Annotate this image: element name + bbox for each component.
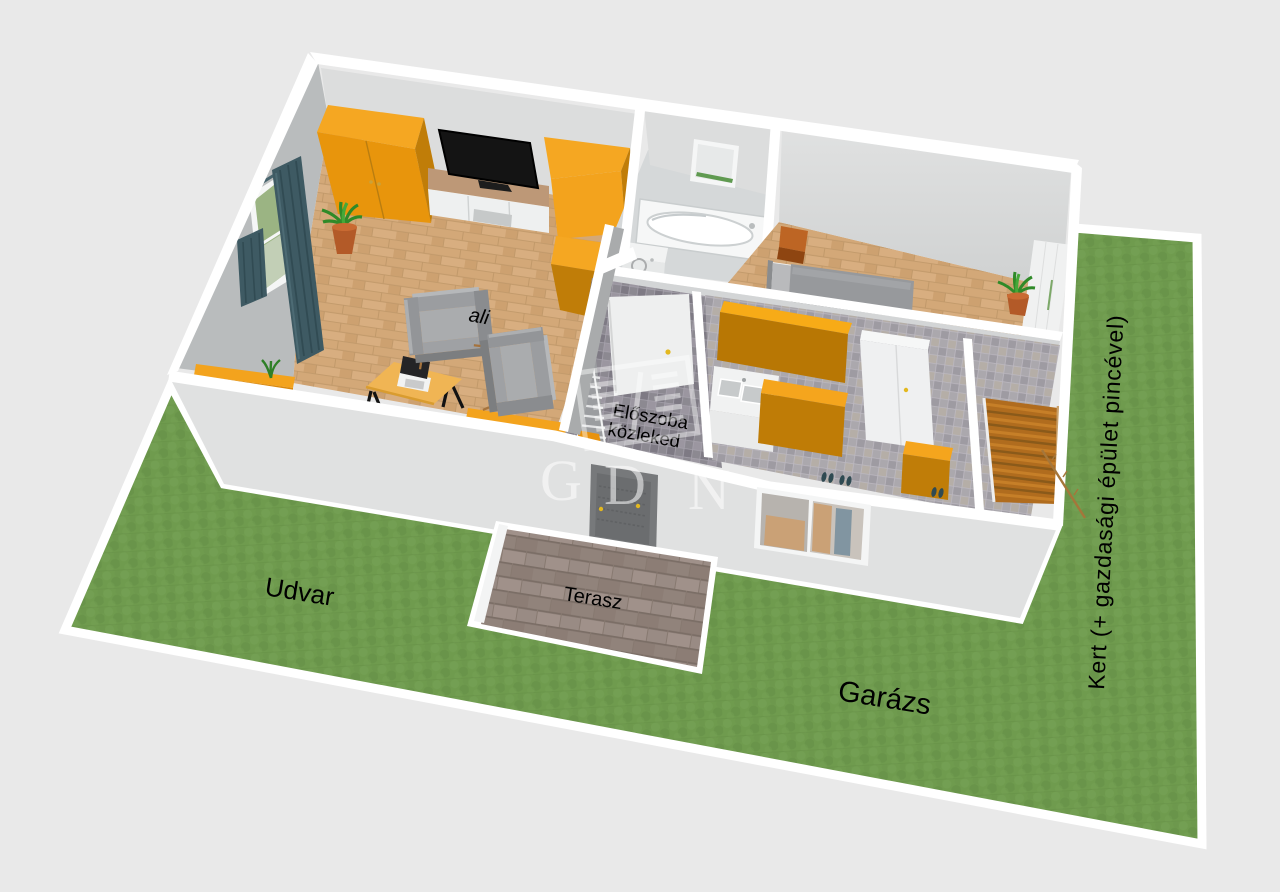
svg-text:G: G [540,448,582,513]
svg-text:N: N [688,457,730,522]
svg-text:D: D [604,452,646,517]
